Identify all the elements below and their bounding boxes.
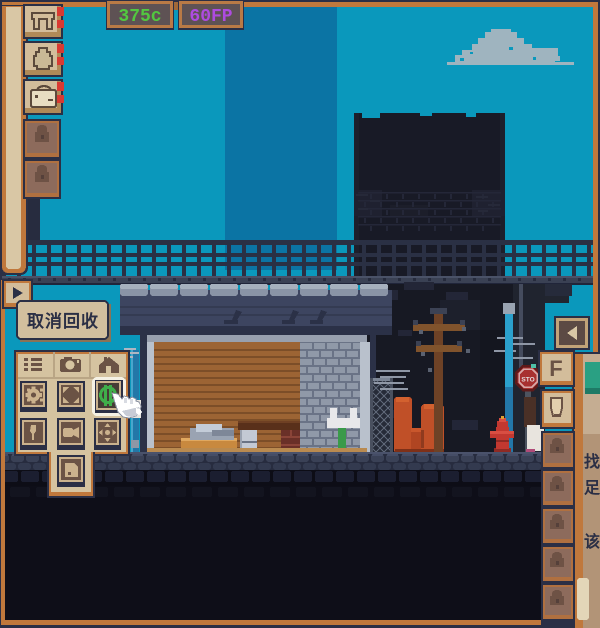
svg-text:375c: 375c: [118, 7, 161, 27]
svg-text:60FP: 60FP: [189, 7, 232, 27]
svg-text:该: 该: [584, 532, 600, 551]
svg-text:找: 找: [584, 452, 600, 471]
svg-text:足: 足: [584, 479, 600, 497]
svg-text:F: F: [549, 356, 562, 381]
svg-text:STO: STO: [521, 377, 534, 384]
svg-text:取消回收: 取消回收: [27, 311, 99, 331]
